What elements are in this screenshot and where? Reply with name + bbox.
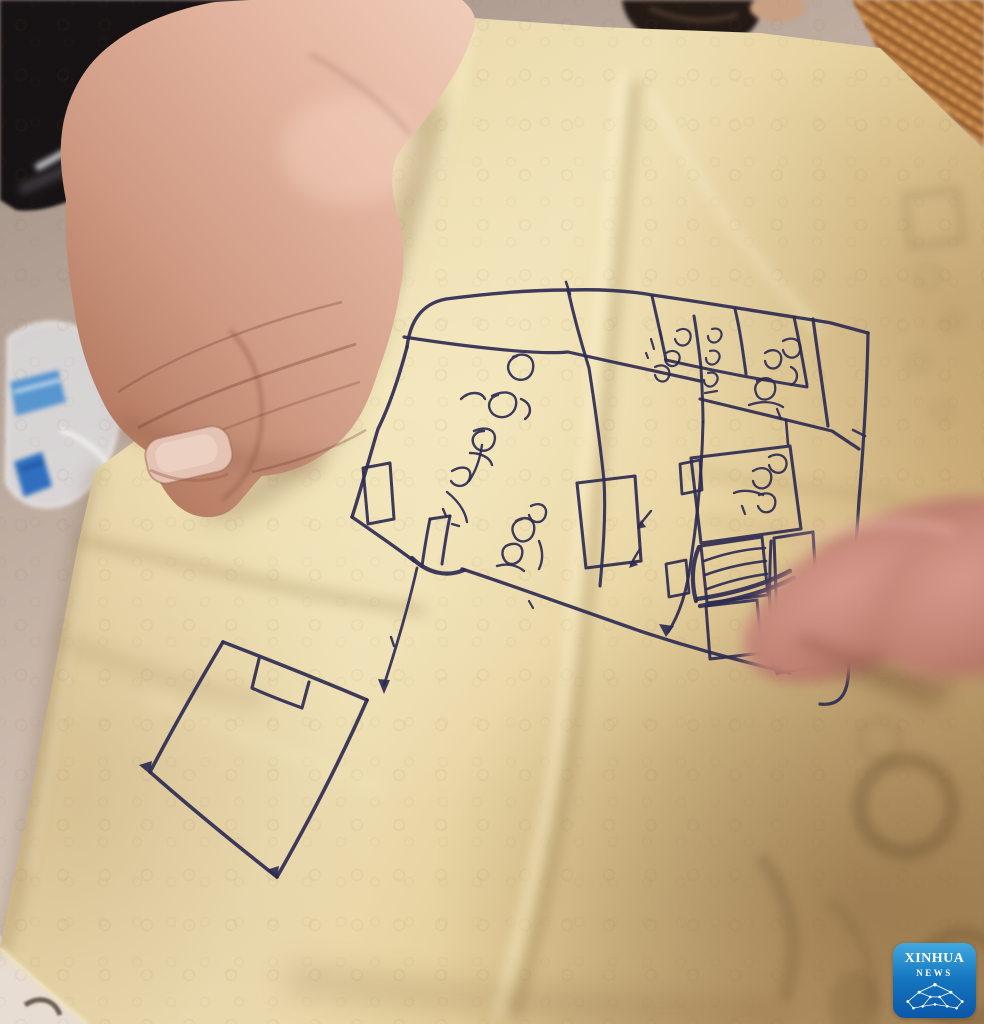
foreground-layer xyxy=(0,0,984,1024)
logo-subtitle: NEWS xyxy=(893,968,976,978)
logo-title: XINHUA xyxy=(893,951,976,967)
xinhua-logo: XINHUA NEWS xyxy=(893,943,976,1018)
photo: XINHUA NEWS xyxy=(0,0,984,1024)
network-icon xyxy=(900,980,970,1010)
